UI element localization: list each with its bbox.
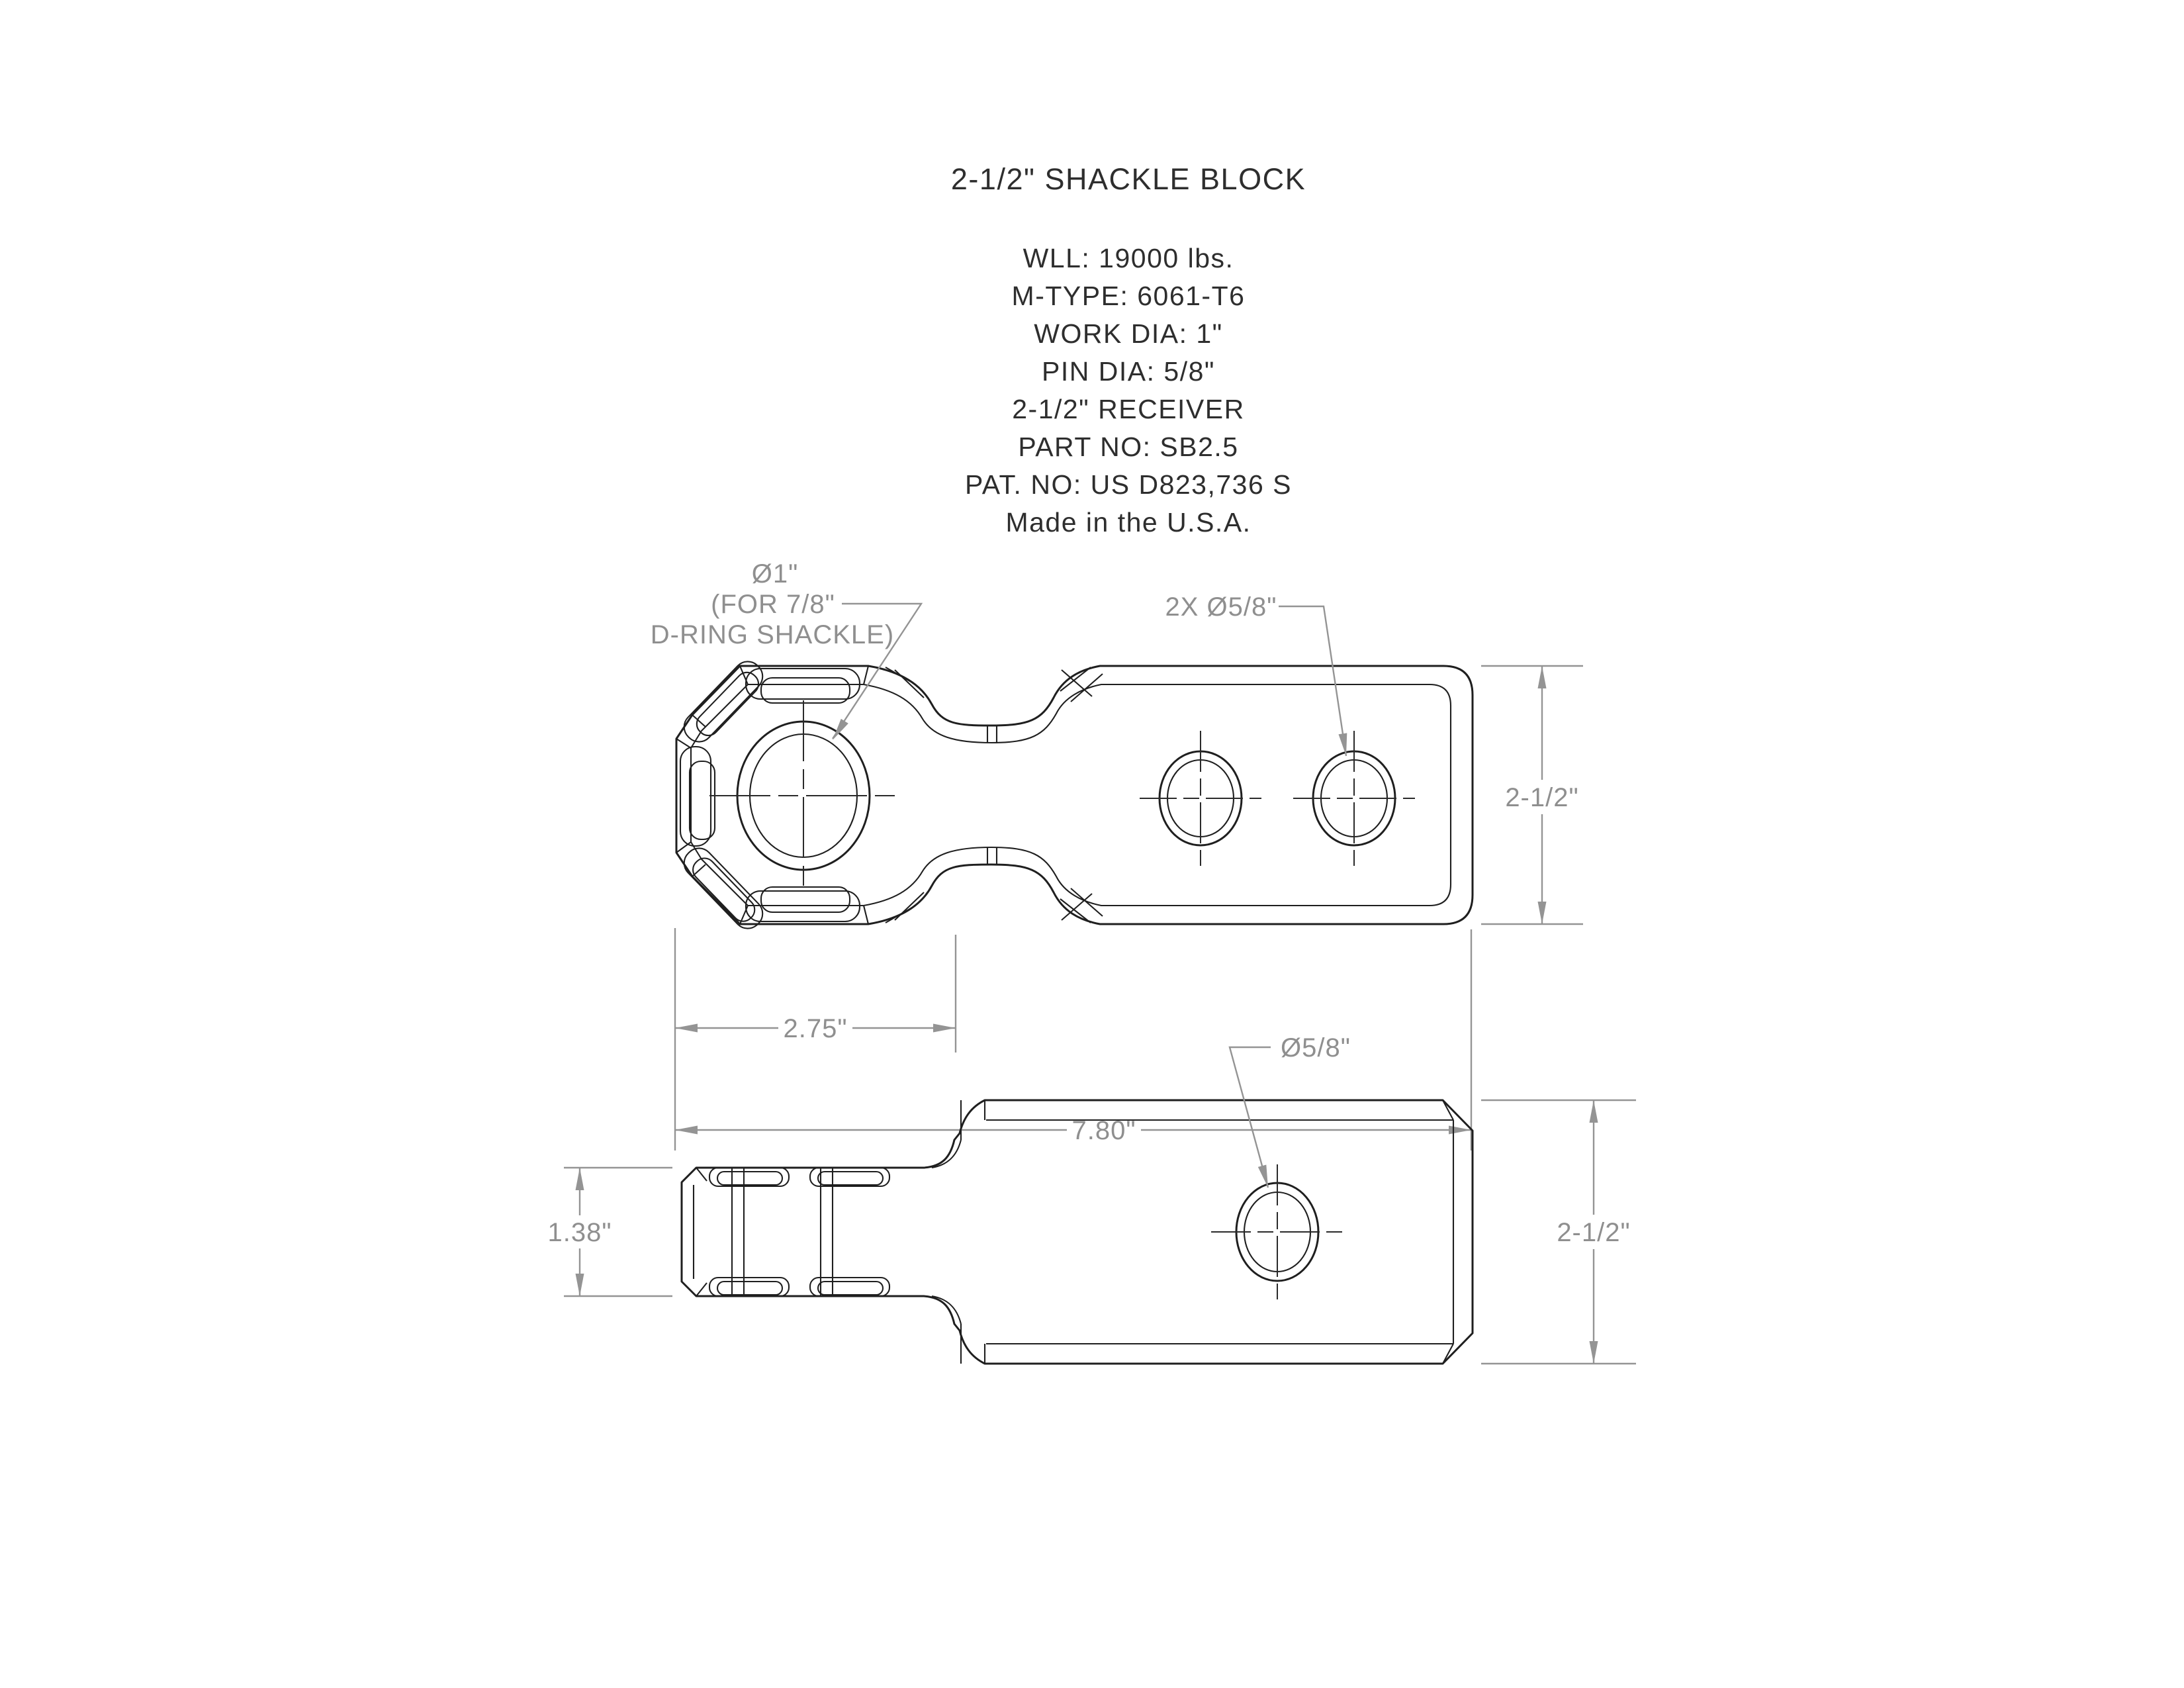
- main-hole-dia-label-line2: (FOR 7/8": [711, 590, 835, 619]
- top-view-neck-ticks: [987, 726, 997, 865]
- spec-line-pin-dia: PIN DIA: 5/8": [1042, 356, 1215, 387]
- head-length-dim-text: 2.75": [783, 1014, 847, 1043]
- spec-line-work-dia: WORK DIA: 1": [1034, 318, 1222, 349]
- edge-slot-top-2-outer: [810, 1168, 889, 1186]
- pin-holes-leader-line: [1279, 606, 1346, 756]
- side-pin-hole-label: Ø5/8": [1281, 1033, 1351, 1062]
- top-view: [676, 656, 1473, 934]
- pin-hole-1: [1140, 731, 1261, 866]
- head-height-arrow-up: [576, 1168, 584, 1190]
- edge-slot-bottom-2-outer: [810, 1278, 889, 1296]
- pin-holes-label: 2X Ø5/8": [1165, 592, 1277, 622]
- spec-line-receiver: 2-1/2" RECEIVER: [1012, 394, 1245, 424]
- side-width-arrow-up: [1590, 1100, 1598, 1123]
- edge-slot-bottom-2-inner: [818, 1282, 883, 1295]
- side-view-collar-detail: [932, 1100, 985, 1364]
- main-hole-dia-label-line3: D-RING SHACKLE): [651, 620, 894, 649]
- title-block: 2-1/2" SHACKLE BLOCK WLL: 19000 lbs. M-T…: [951, 162, 1306, 538]
- top-width-arrow-down: [1538, 902, 1547, 924]
- edge-slot-top-1-inner: [717, 1172, 782, 1185]
- main-hole: [709, 700, 897, 891]
- edge-slot-bottom-1-inner: [717, 1282, 782, 1295]
- edge-slot-top-1-outer: [709, 1168, 789, 1186]
- edge-slot-top-2-inner: [818, 1172, 883, 1185]
- head-height-dim-text: 1.38": [547, 1218, 612, 1247]
- side-width-dim-text: 2-1/2": [1557, 1218, 1630, 1247]
- side-pin-hole: [1211, 1164, 1343, 1299]
- drawing-title: 2-1/2" SHACKLE BLOCK: [951, 162, 1306, 196]
- side-view-dimensions: Ø5/8" 1.38" 2-1/2": [541, 1033, 1639, 1364]
- spec-line-origin: Made in the U.S.A.: [1005, 507, 1251, 538]
- drawing-canvas: 2-1/2" SHACKLE BLOCK WLL: 19000 lbs. M-T…: [0, 0, 2184, 1688]
- spec-line-wll: WLL: 19000 lbs.: [1023, 243, 1234, 273]
- head-length-arrow-right: [933, 1024, 956, 1033]
- side-width-arrow-down: [1590, 1341, 1598, 1364]
- spec-line-material: M-TYPE: 6061-T6: [1012, 281, 1246, 311]
- edge-slot-bottom-1-outer: [709, 1278, 789, 1296]
- top-width-arrow-up: [1538, 666, 1547, 688]
- side-view-head-detail: [694, 1168, 833, 1296]
- total-length-arrow-left: [675, 1126, 698, 1135]
- top-view-chamfer-hatch: [886, 667, 1103, 923]
- side-view-edge-slots: [709, 1168, 889, 1296]
- spec-line-part-no: PART NO: SB2.5: [1018, 432, 1238, 462]
- head-height-arrow-down: [576, 1274, 584, 1296]
- top-view-chamfer-outline: [691, 684, 1451, 906]
- engineering-drawing: 2-1/2" SHACKLE BLOCK WLL: 19000 lbs. M-T…: [0, 0, 2184, 1688]
- side-pin-hole-leader-arrow: [1258, 1165, 1268, 1188]
- pin-hole-2: [1293, 731, 1415, 866]
- spec-line-patent: PAT. NO: US D823,736 S: [965, 469, 1292, 500]
- top-width-dim-text: 2-1/2": [1505, 783, 1578, 812]
- head-length-arrow-left: [675, 1024, 698, 1033]
- main-hole-dia-label-line1: Ø1": [752, 559, 799, 588]
